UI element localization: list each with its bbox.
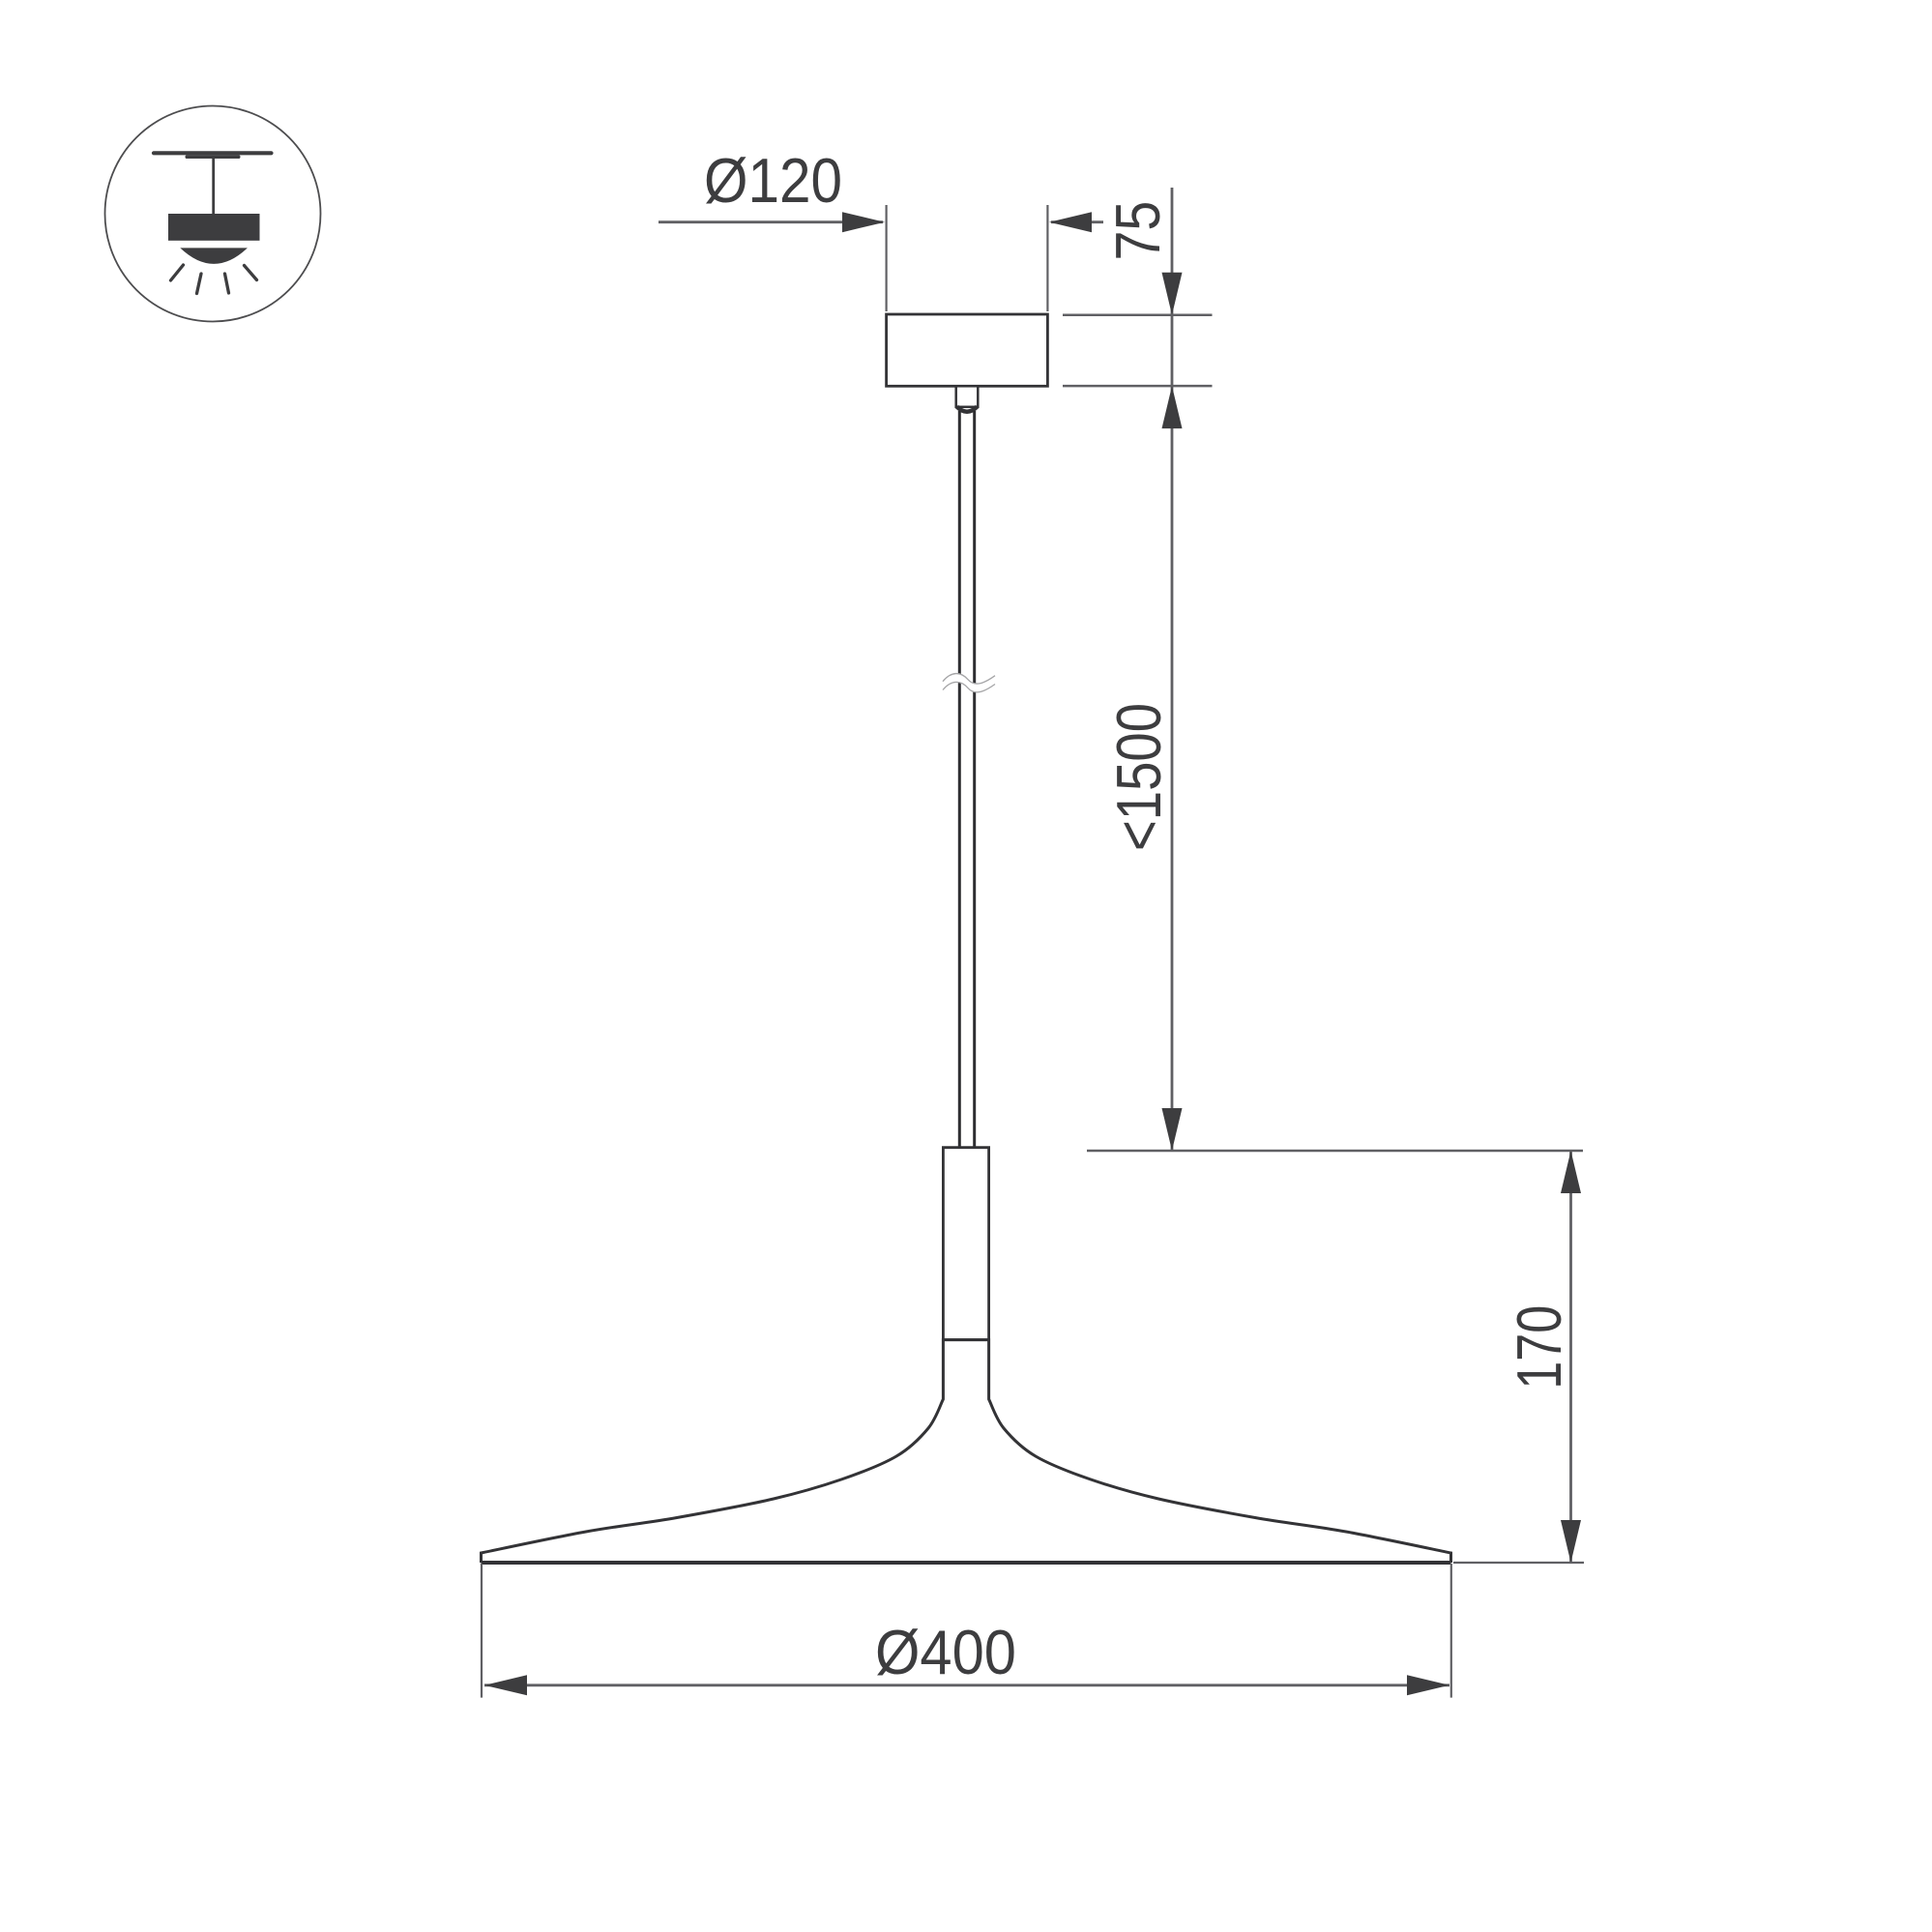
svg-text:<1500: <1500 <box>1103 703 1174 851</box>
svg-text:170: 170 <box>1504 1305 1574 1390</box>
svg-text:Ø400: Ø400 <box>875 1617 1016 1687</box>
svg-text:Ø120: Ø120 <box>704 145 842 216</box>
svg-text:75: 75 <box>1102 201 1173 261</box>
